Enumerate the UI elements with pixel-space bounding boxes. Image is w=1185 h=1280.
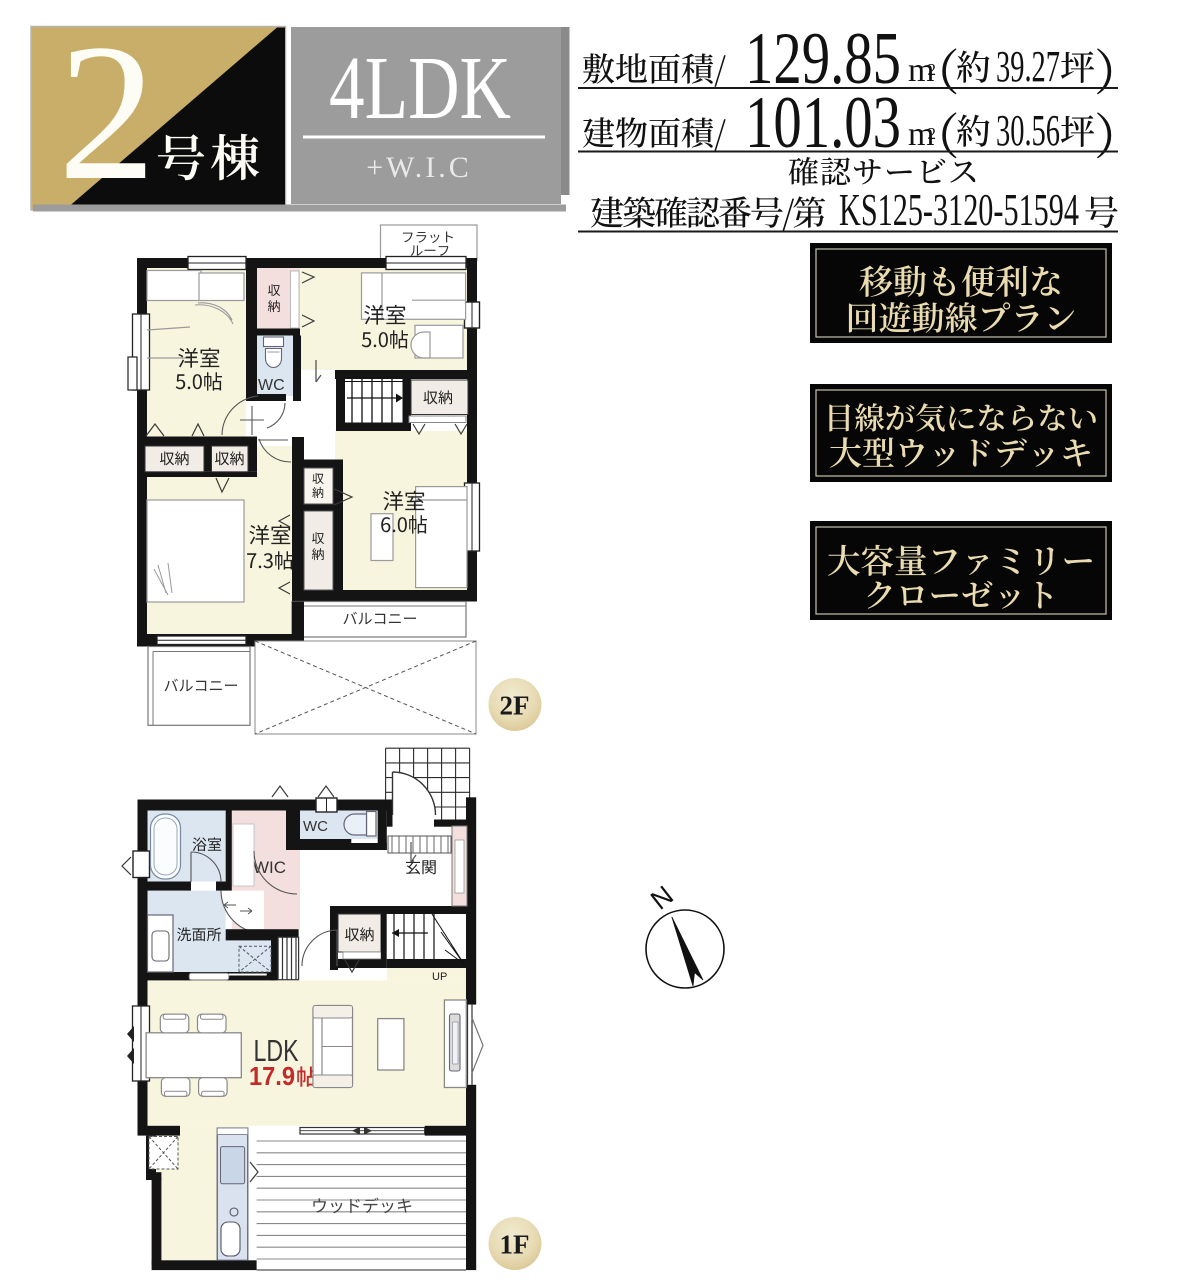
svg-text:4LDK: 4LDK (329, 39, 511, 138)
svg-text:+W.I.C: +W.I.C (366, 151, 471, 184)
svg-text:17.9: 17.9 (249, 1061, 295, 1091)
svg-text:2: 2 (928, 60, 937, 79)
svg-text:UP: UP (432, 971, 447, 983)
svg-text:KS125-3120-51594: KS125-3120-51594 (839, 184, 1079, 235)
svg-text:2: 2 (928, 124, 937, 143)
svg-text:30.56: 30.56 (996, 106, 1060, 155)
svg-text:WC: WC (303, 818, 328, 835)
svg-text:39.27: 39.27 (996, 42, 1060, 91)
svg-text:WIC: WIC (253, 858, 286, 877)
svg-text:2F: 2F (500, 691, 530, 721)
svg-text:1F: 1F (500, 1230, 530, 1260)
svg-text:WC: WC (258, 377, 285, 394)
svg-text:2: 2 (58, 4, 156, 221)
